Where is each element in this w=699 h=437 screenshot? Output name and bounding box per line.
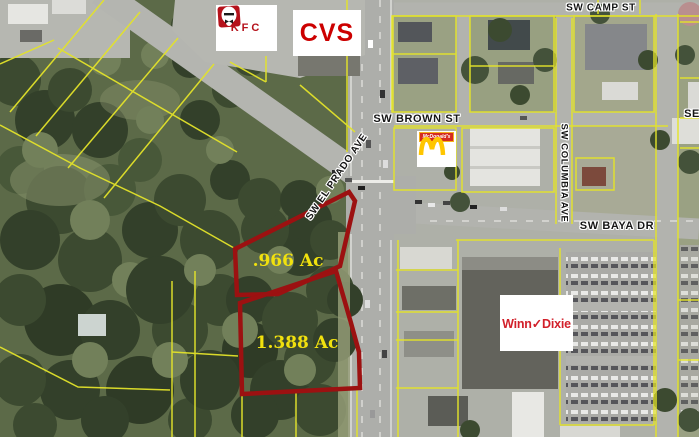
aerial-photo-layer bbox=[0, 0, 699, 437]
cvs-logo: CVS bbox=[293, 10, 361, 56]
mcdonalds-logo: McDonald's bbox=[417, 131, 456, 167]
aerial-map: SW CAMP ST SW BROWN ST SW EL PRADO AVE S… bbox=[0, 0, 699, 437]
street-label-sw-camp-st: SW CAMP ST bbox=[566, 3, 636, 14]
street-label-sw-baya-dr: SW BAYA DR bbox=[580, 220, 654, 232]
kfc-logo: KFC bbox=[216, 5, 277, 51]
street-label-sw-columbia-ave: SW COLUMBIA AVE bbox=[559, 124, 570, 223]
street-label-se: SE bbox=[684, 108, 699, 120]
street-label-sw-brown-st: SW BROWN ST bbox=[373, 113, 460, 125]
parcel-area-label-966: .966 Ac bbox=[253, 251, 324, 271]
winn-dixie-logo: Winn✓Dixie bbox=[500, 295, 573, 351]
parcel-area-label-1388: 1.388 Ac bbox=[256, 333, 339, 353]
cvs-logo-text: CVS bbox=[300, 21, 354, 46]
winn-dixie-logo-text: Winn✓Dixie bbox=[502, 316, 571, 331]
mcdonalds-arches-icon bbox=[417, 131, 447, 155]
kfc-colonel-icon bbox=[216, 5, 242, 29]
